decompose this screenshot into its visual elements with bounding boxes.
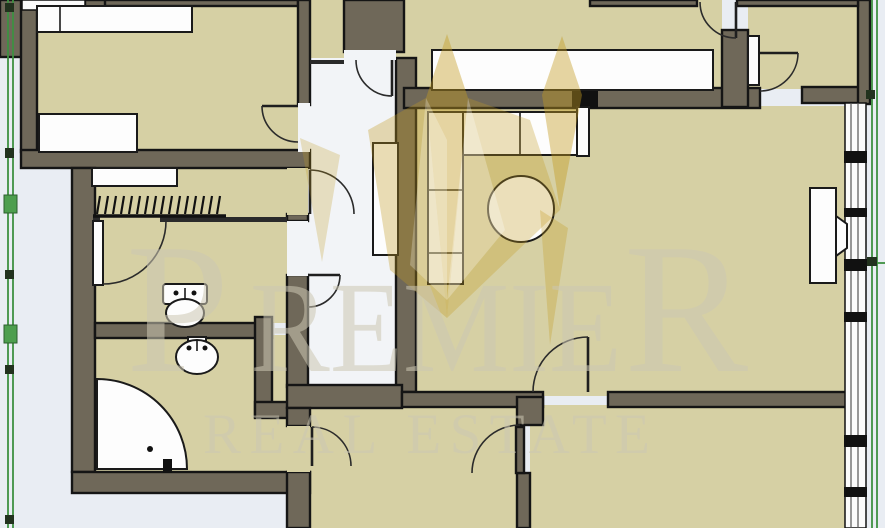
door-opening [287,168,308,215]
wall-segment [517,473,530,528]
dresser-symbol [39,114,137,152]
boundary-post [5,3,14,12]
wall-segment [858,0,870,104]
floorplan-image: P REMIE R REAL ESTATE [0,0,885,528]
wall-segment [21,0,37,152]
door-opening [344,50,396,60]
wall-segment [72,472,310,493]
window-mullion [844,487,867,497]
window-mullion [844,435,867,447]
wall-segment [72,168,95,472]
boundary-post [5,365,14,374]
wall-segment [310,60,344,64]
wall-segment [737,0,858,6]
wall-segment [287,214,308,221]
window-mullion [844,151,867,163]
wall-segment [287,472,310,528]
watermark-brand-mid: REMIE [250,256,622,400]
window-mullion [844,208,867,217]
boundary-post [866,90,875,99]
wall-segment [344,0,404,52]
watermark-brand-initial: P [126,206,229,412]
door-frame [748,36,759,85]
boundary-post [5,270,14,279]
watermark-brand-final: R [624,206,748,412]
window-mullion [844,312,867,322]
wall-segment [722,30,748,107]
boundary-post [4,325,17,343]
wall-segment [590,0,697,6]
boundary-post [5,148,14,158]
window-mullion [844,259,867,271]
boundary-post [5,515,14,524]
entry-room-floor [748,0,860,89]
boundary-post [4,195,17,213]
boundary-post [867,257,877,266]
watermark-tagline: REAL ESTATE [203,403,663,466]
closet-shelf-symbol [92,168,177,186]
floorplan-svg: P REMIE R REAL ESTATE [0,0,885,528]
wall-segment [802,87,866,103]
wall-segment [298,0,310,105]
